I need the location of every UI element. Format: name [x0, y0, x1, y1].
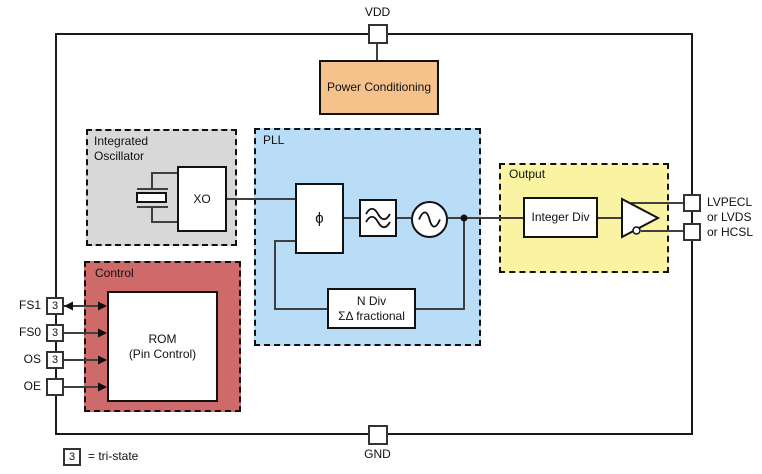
- oe-pin: [46, 378, 64, 396]
- power-conditioning-block: Power Conditioning: [319, 60, 439, 115]
- output-format-label-2: or LVDS: [707, 210, 751, 225]
- xo-block: XO: [177, 166, 227, 232]
- gnd-label: GND: [360, 447, 395, 462]
- integer-div-label: Integer Div: [531, 210, 589, 225]
- block-diagram: VDD GND Power Conditioning Integrated Os…: [0, 0, 762, 474]
- legend-text: = tri-state: [88, 449, 138, 464]
- control-title: Control: [95, 266, 134, 281]
- loop-filter-block: [359, 199, 397, 237]
- fs1-tristate: 3: [52, 301, 58, 312]
- rom-sublabel: (Pin Control): [129, 347, 196, 362]
- output-format-label-3: or HCSL: [707, 225, 753, 240]
- vdd-label: VDD: [360, 5, 395, 20]
- integrated-oscillator-title-line1: Integrated: [94, 134, 148, 149]
- integer-div-block: Integer Div: [523, 197, 598, 238]
- os-pin-label: OS: [0, 352, 41, 367]
- gnd-pin: [368, 425, 388, 445]
- phase-detector-block: ϕ: [295, 183, 344, 254]
- crystal-icon: [136, 192, 167, 203]
- pll-title: PLL: [263, 133, 284, 148]
- output-format-label-1: LVPECL: [707, 195, 752, 210]
- fs1-pin-label: FS1: [0, 298, 41, 313]
- rom-label: ROM: [149, 332, 177, 347]
- os-tristate: 3: [52, 355, 58, 366]
- sigma-delta-label: ΣΔ fractional: [338, 309, 405, 324]
- legend-tristate-symbol: 3: [63, 448, 81, 466]
- fs0-pin-label: FS0: [0, 325, 41, 340]
- oe-pin-label: OE: [0, 379, 41, 394]
- fs1-pin: 3: [46, 297, 64, 315]
- legend-symbol-text: 3: [69, 452, 75, 463]
- sine-icon: [415, 205, 444, 234]
- phase-symbol: ϕ: [315, 211, 323, 226]
- clk-out-pin-negative: [683, 223, 701, 241]
- n-div-block: N Div ΣΔ fractional: [327, 288, 416, 329]
- integrated-oscillator-title-line2: Oscillator: [94, 149, 144, 164]
- clk-out-pin-positive: [683, 194, 701, 212]
- os-pin: 3: [46, 351, 64, 369]
- fs0-tristate: 3: [52, 328, 58, 339]
- fs0-pin: 3: [46, 324, 64, 342]
- vdd-pin: [368, 24, 388, 44]
- xo-label: XO: [193, 192, 210, 207]
- n-div-label: N Div: [357, 294, 386, 309]
- vco-block: [411, 201, 448, 238]
- output-title: Output: [509, 167, 545, 182]
- lowpass-filter-icon: [362, 202, 394, 234]
- rom-block: ROM (Pin Control): [107, 291, 218, 402]
- power-conditioning-label: Power Conditioning: [327, 80, 431, 95]
